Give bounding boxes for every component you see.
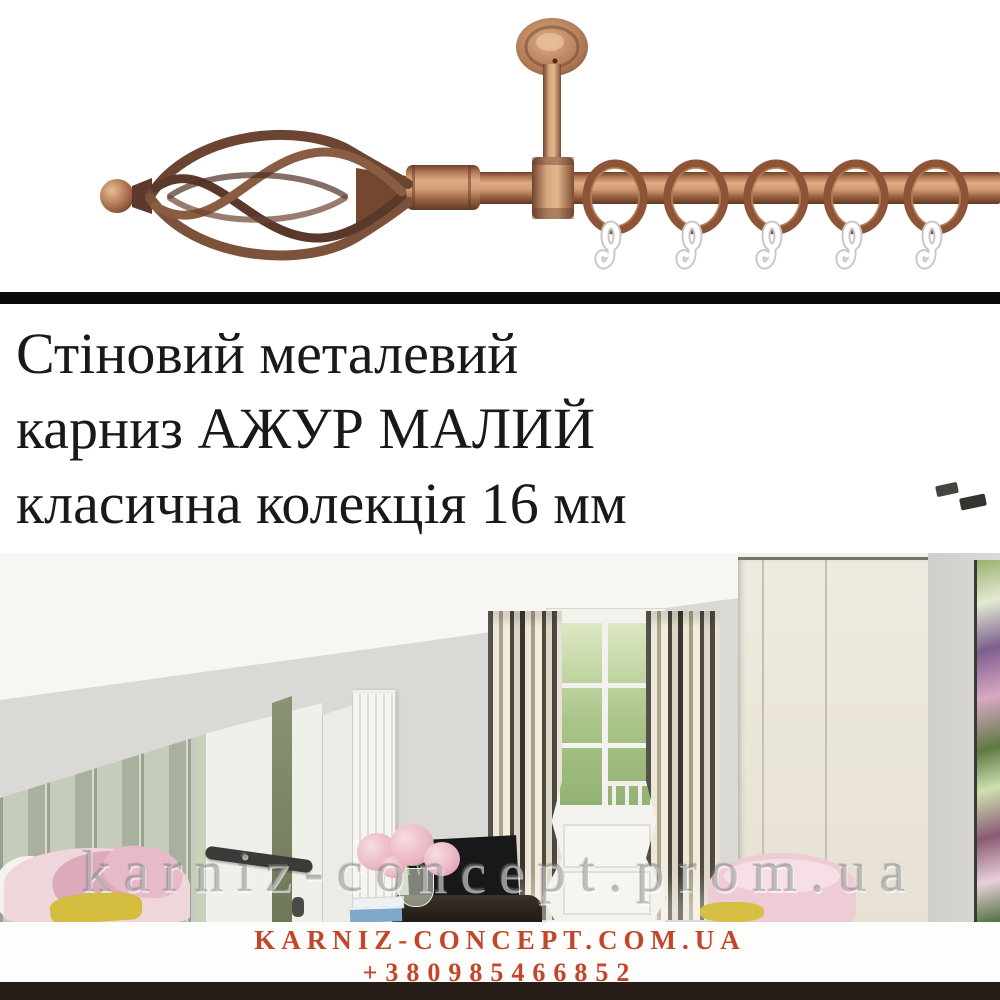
curtain-hook: [920, 225, 938, 265]
page-title: Стіновий металевий карниз АЖУР МАЛИЙ кла…: [16, 316, 976, 541]
title-line-2: карниз АЖУР МАЛИЙ: [16, 391, 976, 466]
curtain-rod-photo: [0, 0, 1000, 292]
bracket-holder: [532, 157, 574, 219]
title-line-3: класична колекція 16 мм: [16, 466, 976, 541]
balcony-baluster: [612, 786, 616, 805]
rod-end-adapter: [406, 165, 480, 210]
balcony-baluster: [625, 786, 629, 805]
watermark: karniz-concept.prom.ua: [0, 838, 1000, 905]
ceiling-bracket: [516, 18, 588, 168]
product-card: Стіновий металевий карниз АЖУР МАЛИЙ кла…: [0, 0, 1000, 1000]
window-mullion: [602, 623, 608, 805]
footer: KARNIZ-CONCEPT.COM.UA +380985466852: [0, 922, 1000, 982]
window-mullion: [560, 683, 650, 688]
window-mullion: [560, 743, 650, 748]
balcony-baluster: [638, 786, 642, 805]
book-stack: [350, 906, 402, 922]
curtain-hooks: [599, 225, 938, 265]
divider-bar: [0, 292, 1000, 304]
yellow-pillow: [700, 902, 764, 922]
finial-cage: [100, 135, 408, 255]
footer-website: KARNIZ-CONCEPT.COM.UA: [0, 925, 1000, 956]
curtain-hook: [599, 225, 617, 265]
finial-ball: [100, 179, 134, 213]
title-line-1: Стіновий металевий: [16, 316, 976, 391]
curtain-hook: [680, 225, 698, 265]
curtain-hook: [760, 225, 778, 265]
curtain-hook: [840, 225, 858, 265]
bottom-bar: [0, 982, 1000, 1000]
window-glass: [560, 623, 650, 805]
